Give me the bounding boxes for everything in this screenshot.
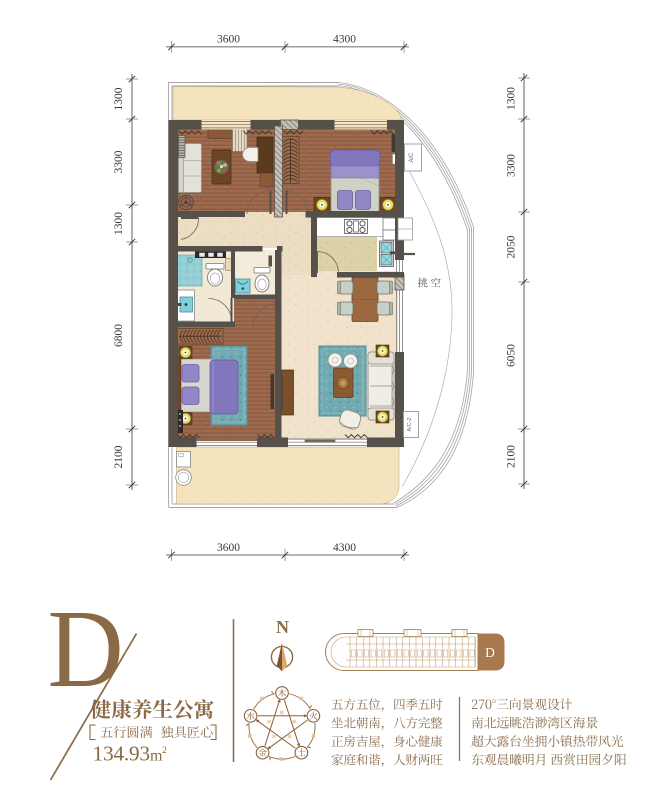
svg-text:3600: 3600 <box>217 34 240 46</box>
svg-text:1300: 1300 <box>506 87 518 110</box>
svg-text:2: 2 <box>162 746 167 756</box>
svg-text:A/C: A/C <box>409 152 415 163</box>
svg-text:6050: 6050 <box>506 344 518 367</box>
svg-text:A/C-2: A/C-2 <box>407 417 413 431</box>
svg-text:2100: 2100 <box>506 445 518 468</box>
svg-text:4300: 4300 <box>333 34 356 46</box>
svg-text:2050: 2050 <box>506 235 518 258</box>
svg-text:1300: 1300 <box>113 87 125 110</box>
svg-text:4300: 4300 <box>333 542 356 554</box>
svg-text:D: D <box>48 589 124 711</box>
svg-text:3300: 3300 <box>506 154 518 177</box>
svg-text:D: D <box>485 645 495 660</box>
svg-text:2100: 2100 <box>113 445 125 468</box>
svg-text:3600: 3600 <box>217 542 240 554</box>
svg-text:N: N <box>276 617 289 637</box>
svg-text:3300: 3300 <box>113 150 125 173</box>
svg-text:1300: 1300 <box>113 212 125 235</box>
svg-text:6800: 6800 <box>113 324 125 347</box>
svg-text:134.93: 134.93 <box>93 742 150 766</box>
